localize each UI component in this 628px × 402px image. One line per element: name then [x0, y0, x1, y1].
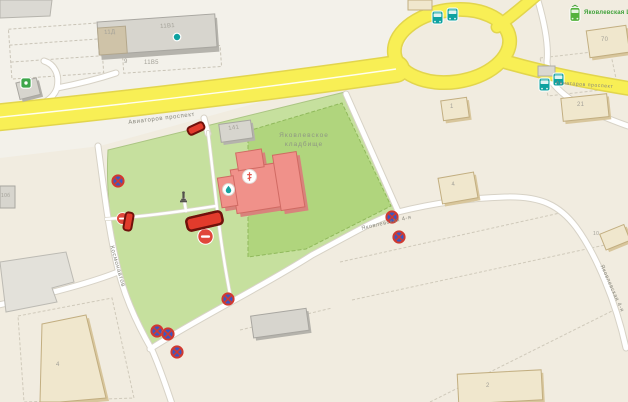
building-label-9: 9 — [124, 59, 128, 65]
map-base-layer — [0, 0, 628, 402]
building-label-11d: 11Д — [104, 29, 116, 36]
cemetery-label-line1: Яковлевское — [266, 131, 342, 140]
map-canvas[interactable]: Авиаторов проспект Авиаторов проспект Ко… — [0, 0, 628, 402]
cemetery-label: Яковлевское кладбище — [266, 131, 342, 149]
no-stopping-sign-icon[interactable] — [392, 230, 406, 244]
building-1 — [441, 97, 470, 120]
building-label-11v1: 11В1 — [160, 23, 175, 30]
building-north-small — [408, 0, 432, 10]
cemetery-label-line2: кладбище — [266, 140, 342, 149]
drinking-water-poi-icon[interactable] — [222, 183, 235, 196]
building-label-11v5: 11В5 — [144, 60, 159, 66]
no-stopping-sign-icon[interactable] — [111, 174, 125, 188]
building — [0, 0, 52, 18]
building-label-1: 1 — [450, 104, 454, 110]
building-label-21: 21 — [577, 102, 584, 108]
no-stopping-sign-icon[interactable] — [161, 327, 175, 341]
organization-poi-icon[interactable] — [20, 77, 32, 89]
entrance-dot-icon[interactable] — [172, 32, 182, 42]
building-label-10: 10 — [593, 231, 599, 237]
tram-stop-label: Яковлевская Церковь — [584, 10, 628, 16]
building-label-4-east: 4 — [451, 181, 456, 188]
bus-stop-icon[interactable] — [446, 6, 459, 22]
building-label-10b: 10б — [1, 193, 10, 199]
tram-stop-icon[interactable] — [568, 4, 582, 23]
monument-icon[interactable] — [179, 191, 188, 203]
building-label-2: 2 — [486, 383, 490, 389]
bus-stop-icon[interactable] — [431, 9, 444, 25]
no-stopping-sign-icon[interactable] — [221, 292, 235, 306]
no-entry-sign-icon[interactable] — [197, 228, 214, 245]
building-4-east — [438, 172, 478, 204]
building-21 — [561, 94, 609, 122]
church-poi-icon[interactable] — [242, 169, 257, 184]
building-label-70: 70 — [601, 37, 608, 43]
bus-stop-icon[interactable] — [538, 76, 551, 92]
building-2 — [457, 370, 542, 402]
no-stopping-sign-icon[interactable] — [170, 345, 184, 359]
building-label-4-sw: 4 — [56, 362, 60, 368]
